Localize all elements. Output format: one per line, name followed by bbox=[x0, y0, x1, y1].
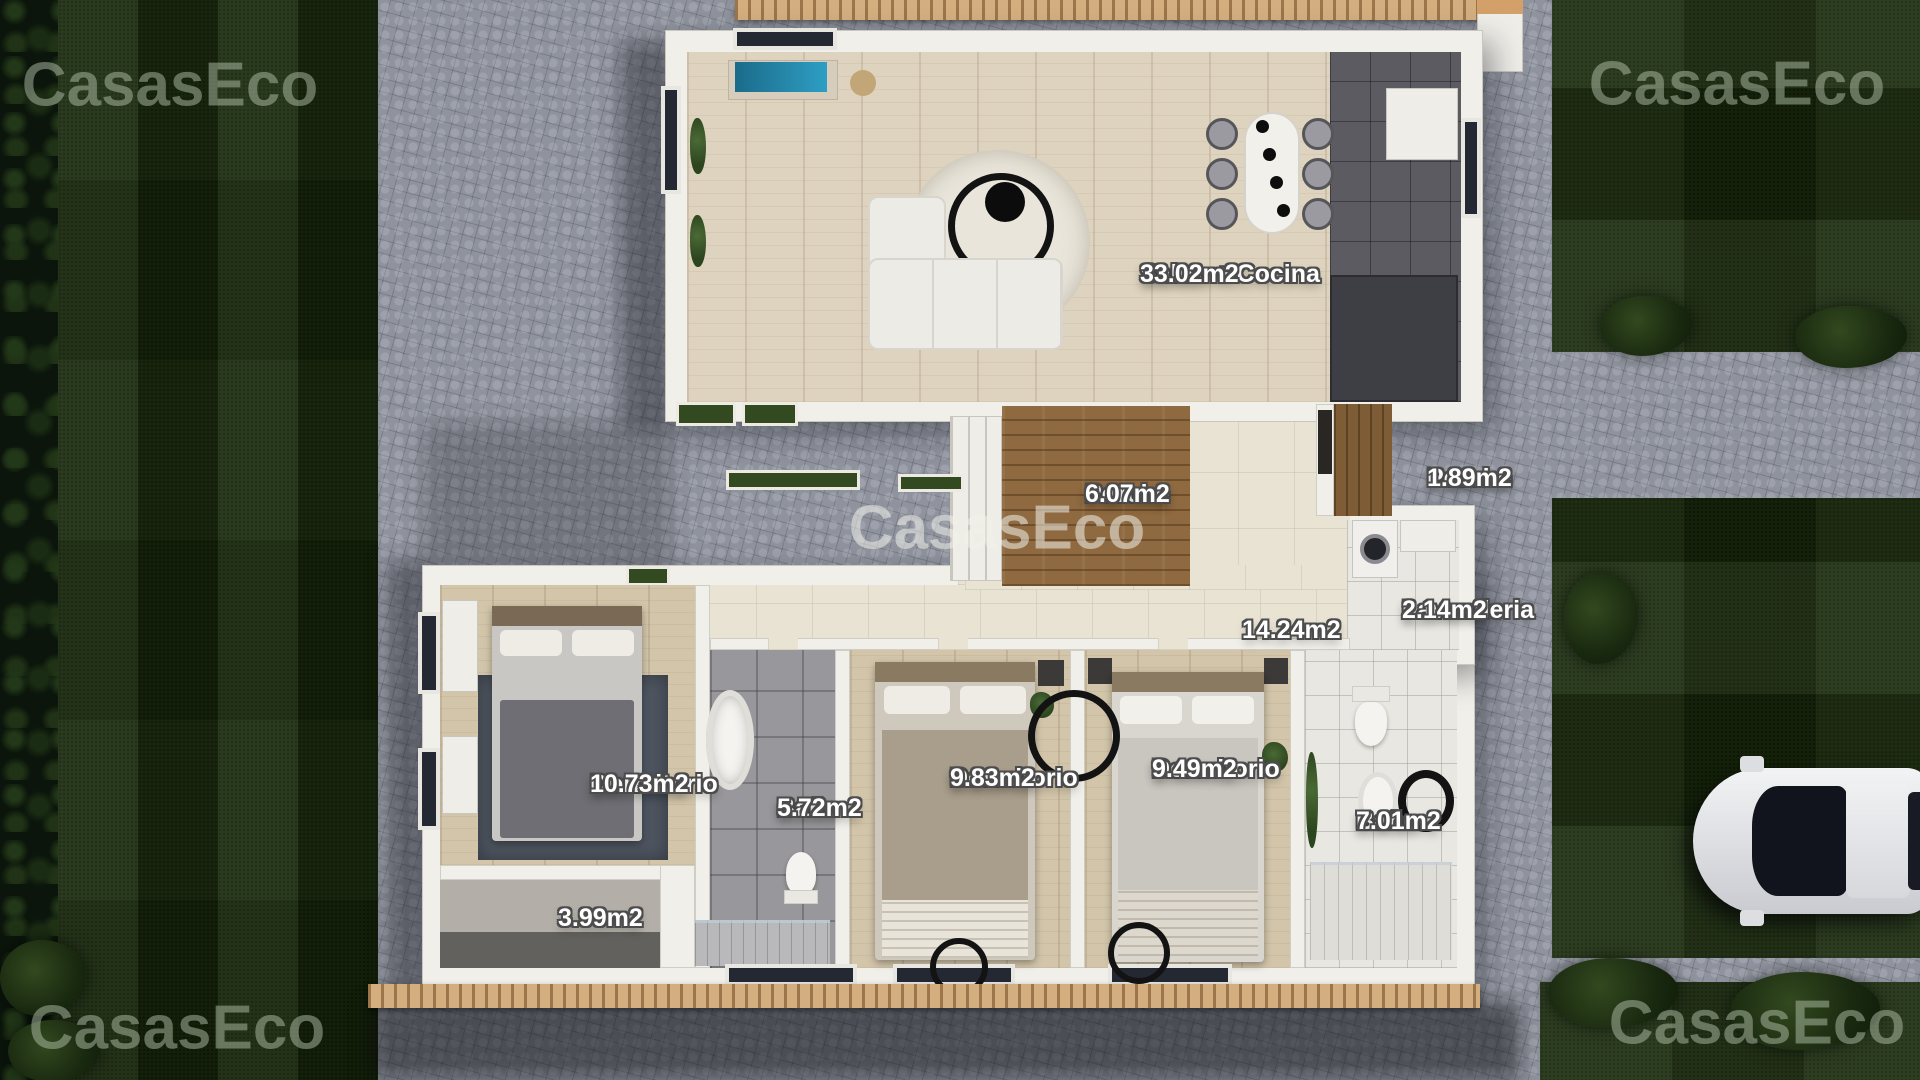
shower-area bbox=[695, 920, 830, 966]
watermark-bottom-left: CasasEco bbox=[29, 993, 325, 1064]
hedge-planter bbox=[676, 402, 736, 426]
washing-machine-door bbox=[1360, 534, 1390, 564]
dining-chair bbox=[1302, 118, 1334, 150]
kitchen-cabinets bbox=[1386, 88, 1458, 160]
pendant-light bbox=[1256, 120, 1269, 133]
car-windshield bbox=[1752, 786, 1848, 896]
tv-screen bbox=[735, 62, 827, 92]
neighbour-roof-corner bbox=[1477, 0, 1523, 14]
room-area: 10.73m2 bbox=[590, 768, 689, 801]
dining-chair bbox=[1206, 158, 1238, 190]
toilet-tank bbox=[1352, 686, 1390, 702]
bed-headboard bbox=[875, 662, 1035, 682]
pendant-light bbox=[1277, 204, 1290, 217]
window bbox=[661, 86, 681, 194]
entry-door-opening bbox=[1318, 410, 1332, 474]
wall bbox=[440, 865, 695, 880]
toilet bbox=[786, 852, 816, 894]
floorplan-scene: CasasEco CasasEco CasasEco CasasEco Casa… bbox=[0, 0, 1920, 1080]
potted-plant bbox=[1306, 752, 1318, 848]
room-area: 7.01m2 bbox=[1356, 805, 1441, 838]
house-shadow bbox=[422, 422, 672, 572]
bed-blanket bbox=[882, 730, 1028, 900]
coffee-table-tray bbox=[985, 182, 1025, 222]
dining-chair bbox=[1206, 118, 1238, 150]
door-opening bbox=[938, 638, 968, 650]
wall bbox=[660, 865, 695, 968]
hedge-planter bbox=[742, 402, 798, 426]
left-lawn bbox=[58, 0, 378, 1080]
room-area: 3.99m2 bbox=[558, 902, 643, 935]
watermark-top-right: CasasEco bbox=[1589, 49, 1885, 120]
pillow bbox=[1192, 696, 1254, 724]
potted-plant bbox=[690, 215, 706, 267]
car-roof bbox=[1846, 784, 1910, 898]
dining-chair bbox=[1206, 198, 1238, 230]
room-area: 2.14m2 bbox=[1402, 594, 1487, 627]
top-roof-eave bbox=[735, 0, 1510, 20]
wardrobe bbox=[442, 736, 478, 814]
watermark-center: CasasEco bbox=[849, 493, 1145, 564]
pillow bbox=[572, 630, 634, 656]
toilet bbox=[1355, 702, 1387, 746]
dining-chair bbox=[1302, 198, 1334, 230]
door-opening bbox=[768, 638, 798, 650]
wall bbox=[1290, 650, 1305, 968]
dining-chair bbox=[1302, 158, 1334, 190]
ceiling-lamp bbox=[1108, 922, 1170, 984]
kitchen-counter bbox=[1330, 275, 1458, 402]
bed-headboard bbox=[1112, 672, 1264, 692]
dining-table bbox=[1244, 112, 1300, 234]
window bbox=[418, 748, 440, 830]
tree-hedge-strip bbox=[0, 0, 58, 1080]
hedge-planter bbox=[626, 566, 670, 586]
potted-plant bbox=[690, 118, 706, 174]
nightstand bbox=[1088, 658, 1112, 684]
sofa bbox=[868, 258, 1063, 350]
nightstand bbox=[1038, 660, 1064, 686]
hedge-planter bbox=[898, 474, 964, 492]
room-area: 14.24m2 bbox=[1242, 614, 1341, 647]
hedge-planter bbox=[726, 470, 860, 490]
door-opening bbox=[1158, 638, 1188, 650]
room-area: 5.72m2 bbox=[777, 792, 862, 825]
pillow bbox=[884, 686, 950, 714]
shower-area bbox=[1310, 862, 1452, 960]
window bbox=[418, 612, 440, 694]
pillow bbox=[500, 630, 562, 656]
nightstand bbox=[1264, 658, 1288, 684]
room-area: 33.02m2 bbox=[1140, 258, 1239, 291]
side-porch-deck bbox=[1334, 404, 1392, 516]
watermark-bottom-right: CasasEco bbox=[1609, 988, 1905, 1059]
room-area: 9.83m2 bbox=[950, 762, 1035, 795]
room-area: 1.89m2 bbox=[1427, 462, 1512, 495]
window bbox=[733, 28, 837, 50]
room-area: 9.49m2 bbox=[1152, 753, 1237, 786]
window bbox=[1461, 118, 1481, 218]
laundry-counter bbox=[1400, 520, 1456, 552]
bed-headboard bbox=[492, 606, 642, 626]
pillow bbox=[1120, 696, 1182, 724]
toilet-tank bbox=[784, 890, 818, 904]
pendant-light bbox=[1270, 176, 1283, 189]
car-mirror bbox=[1740, 756, 1764, 772]
watermark-top-left: CasasEco bbox=[22, 50, 318, 121]
basket bbox=[850, 70, 876, 96]
pillow bbox=[960, 686, 1026, 714]
window bbox=[725, 964, 857, 986]
pendant-light bbox=[1263, 148, 1276, 161]
house-shadow bbox=[370, 1002, 1520, 1080]
bottom-roof-eave bbox=[368, 984, 1480, 1008]
car-mirror bbox=[1740, 910, 1764, 926]
wardrobe bbox=[442, 600, 478, 692]
car-rear-window bbox=[1908, 792, 1920, 890]
terrace-edge bbox=[440, 932, 660, 968]
